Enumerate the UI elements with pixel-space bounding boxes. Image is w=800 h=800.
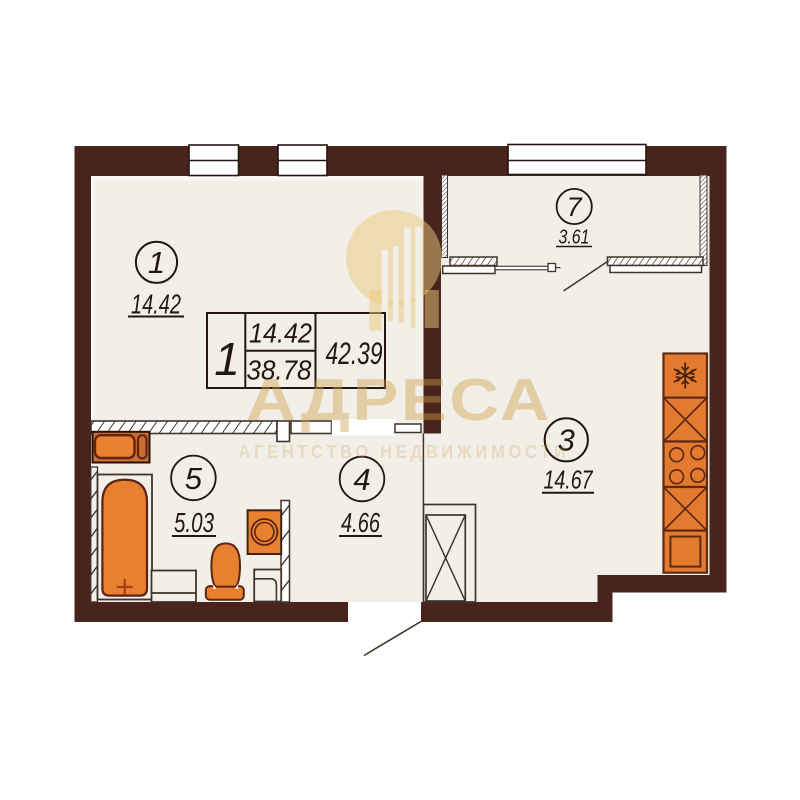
svg-text:АГЕНТСТВО НЕДВИЖИМОСТИ: АГЕНТСТВО НЕДВИЖИМОСТИ [239, 441, 570, 462]
svg-text:4.66: 4.66 [341, 507, 380, 538]
svg-text:42.39: 42.39 [326, 335, 383, 371]
svg-text:7: 7 [567, 192, 583, 222]
svg-text:1: 1 [148, 245, 165, 280]
svg-text:3.61: 3.61 [559, 227, 590, 249]
svg-text:14.42: 14.42 [131, 289, 181, 320]
svg-text:14.67: 14.67 [544, 467, 594, 495]
svg-text:4: 4 [353, 462, 370, 497]
svg-text:14.42: 14.42 [249, 318, 312, 349]
svg-text:5.03: 5.03 [174, 507, 214, 538]
svg-text:5: 5 [185, 461, 203, 496]
svg-text:1: 1 [214, 333, 240, 385]
svg-text:АДРЕСА: АДРЕСА [246, 367, 552, 433]
